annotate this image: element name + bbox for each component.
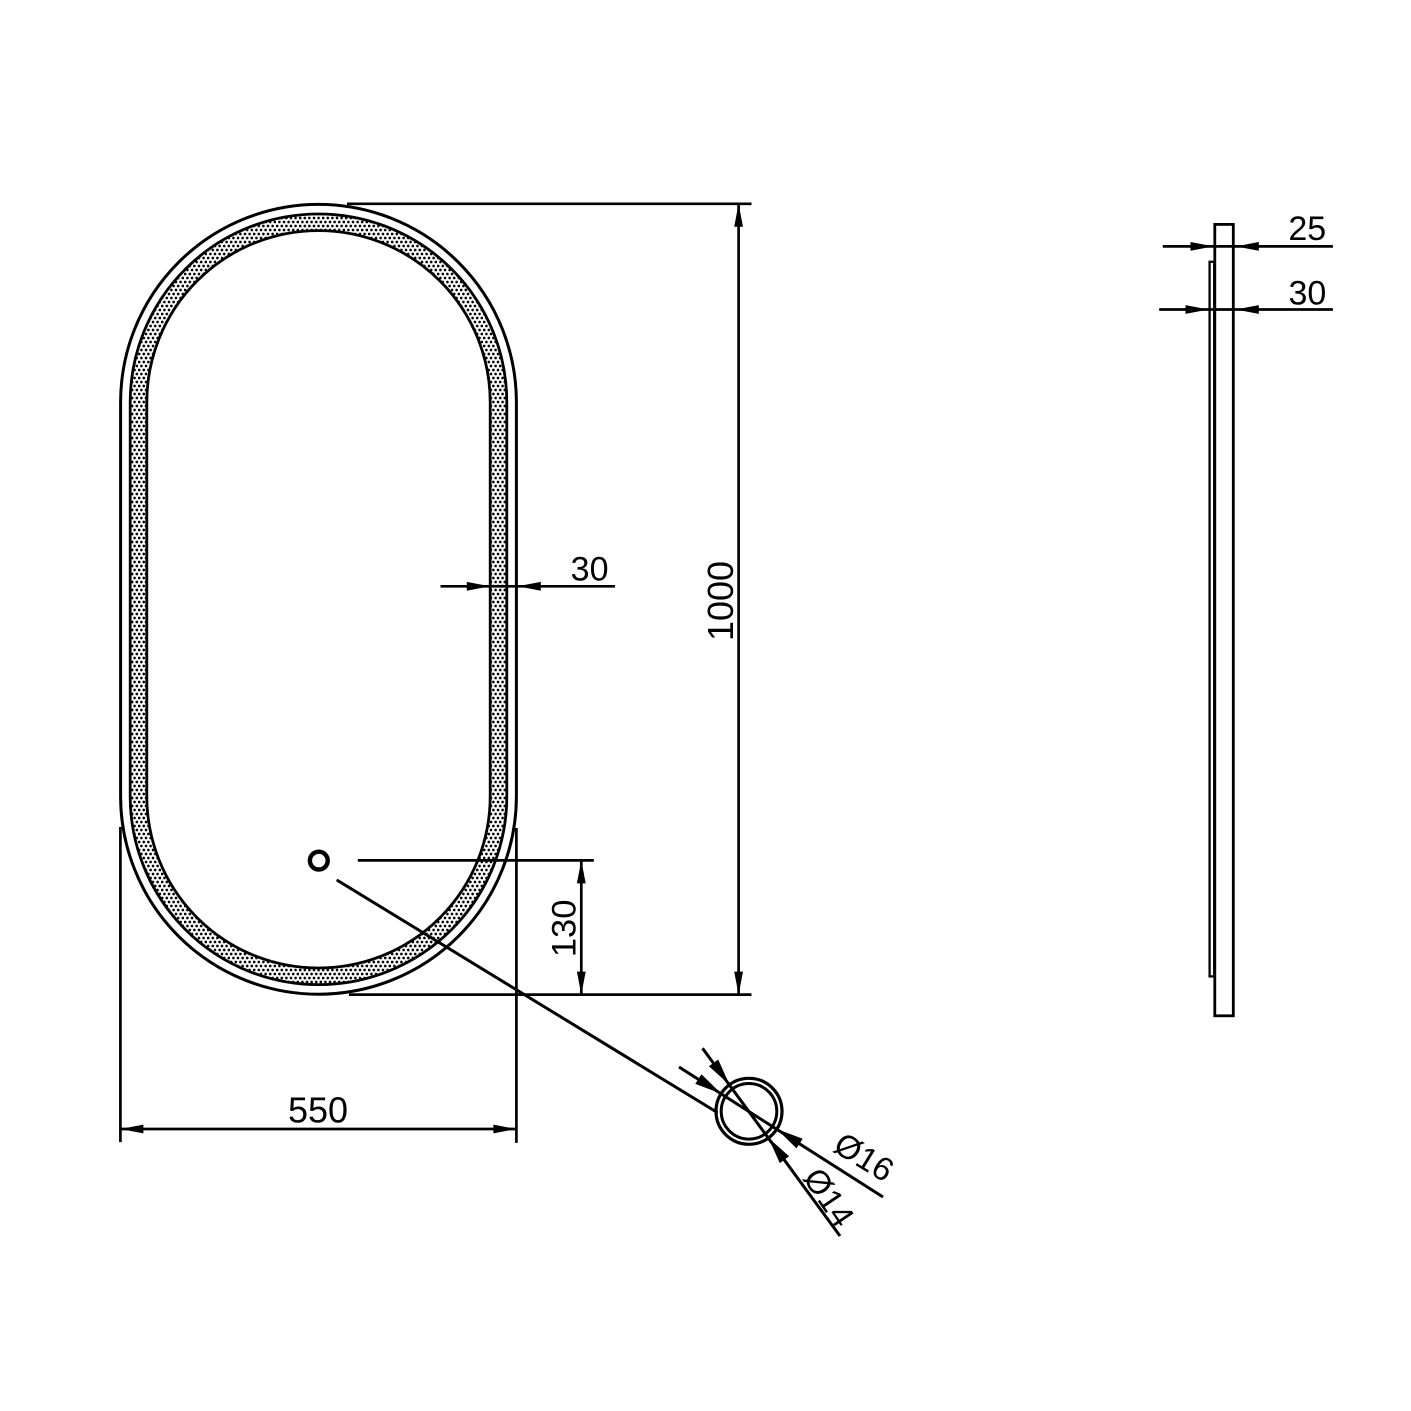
svg-text:1000: 1000 <box>700 561 741 641</box>
svg-text:550: 550 <box>288 1090 348 1131</box>
svg-text:30: 30 <box>1288 275 1326 313</box>
svg-text:25: 25 <box>1288 210 1326 248</box>
svg-text:30: 30 <box>571 550 609 588</box>
svg-text:130: 130 <box>545 900 583 958</box>
